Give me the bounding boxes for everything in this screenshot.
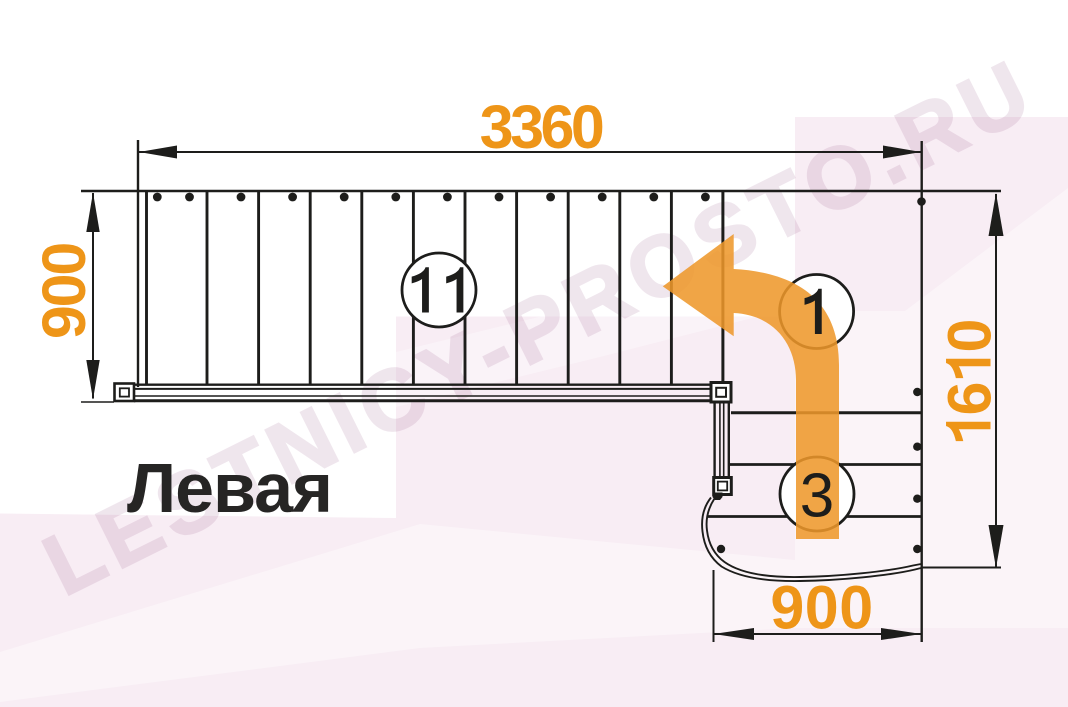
svg-text:3360: 3360 [480,93,603,161]
svg-text:3: 3 [800,462,834,531]
svg-text:0: 0 [936,319,1004,353]
svg-text:900: 900 [30,244,98,339]
svg-text:6: 6 [936,382,1004,416]
svg-text:Левая: Левая [127,449,332,527]
svg-text:900: 900 [770,574,873,642]
